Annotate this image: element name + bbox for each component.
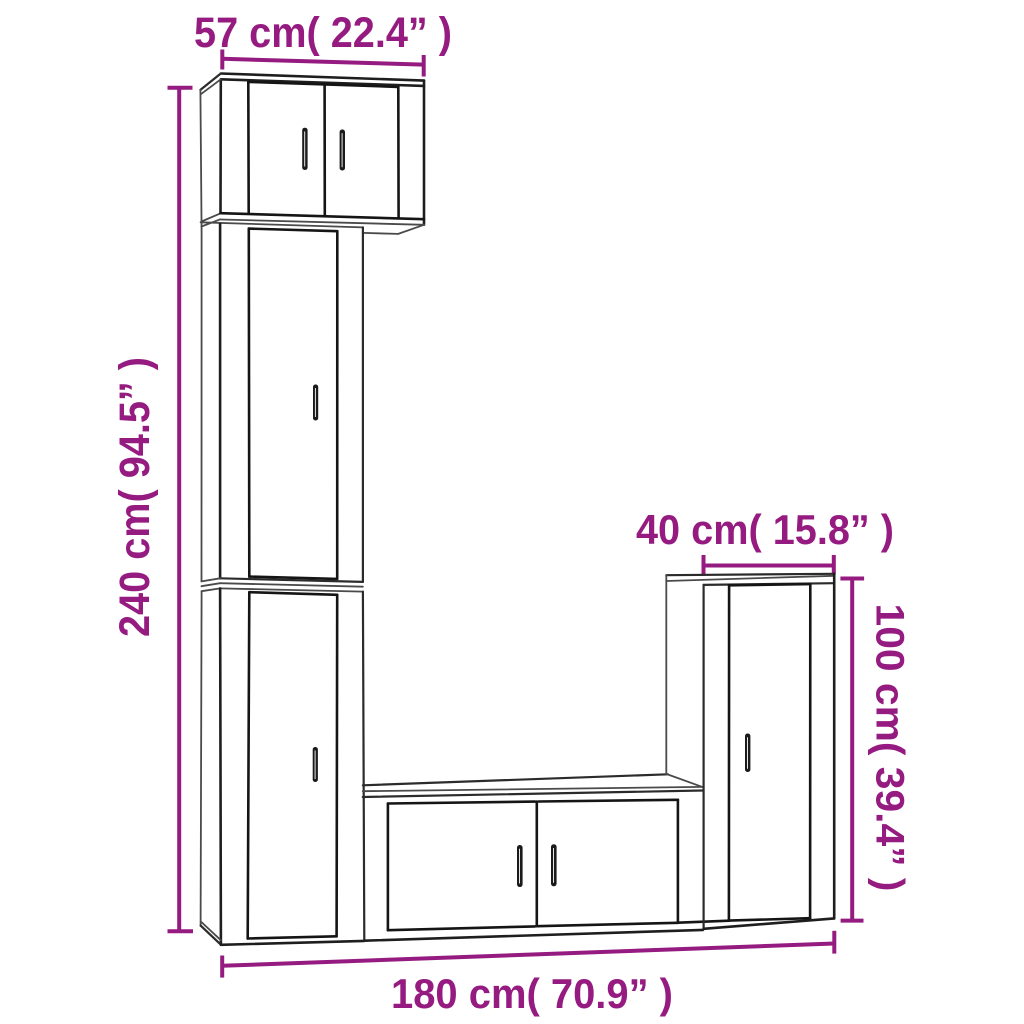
svg-text:180 cm( 70.9” ): 180 cm( 70.9” ) — [391, 970, 673, 1017]
svg-text:57 cm( 22.4” ): 57 cm( 22.4” ) — [194, 9, 452, 57]
svg-text:100 cm( 39.4” ): 100 cm( 39.4” ) — [868, 604, 912, 892]
svg-text:40 cm( 15.8” ): 40 cm( 15.8” ) — [636, 506, 894, 553]
svg-text:240 cm( 94.5” ): 240 cm( 94.5” ) — [112, 357, 159, 637]
